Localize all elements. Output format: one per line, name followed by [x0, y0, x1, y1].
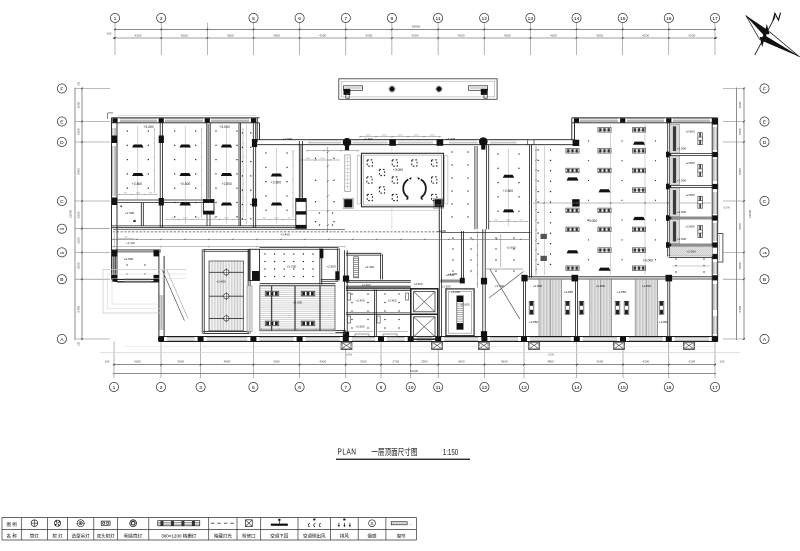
- svg-text:PLAN: PLAN: [338, 447, 357, 457]
- svg-text:烟感: 烟感: [368, 532, 377, 539]
- svg-text:暗藏灯光: 暗藏灯光: [214, 532, 232, 539]
- svg-text:4200: 4200: [689, 360, 696, 364]
- svg-text:4200: 4200: [642, 33, 649, 37]
- svg-text:100: 100: [77, 341, 80, 346]
- svg-text:4200: 4200: [412, 33, 419, 37]
- svg-text:...: ...: [409, 522, 412, 526]
- svg-text:3600: 3600: [177, 360, 184, 364]
- svg-text:9: 9: [391, 16, 394, 22]
- svg-text:300×1200 格栅灯: 300×1200 格栅灯: [161, 532, 196, 539]
- svg-text:+2.850: +2.850: [685, 225, 695, 229]
- svg-text:+2.850: +2.850: [685, 161, 695, 165]
- svg-text:11: 11: [436, 16, 441, 22]
- svg-text:4200: 4200: [181, 33, 188, 37]
- svg-text:4200: 4200: [134, 360, 141, 364]
- svg-text:0.5%: 0.5%: [346, 352, 353, 356]
- svg-text:5400: 5400: [738, 305, 742, 312]
- svg-text:54800: 54800: [412, 25, 421, 29]
- svg-text:+3.200: +3.200: [287, 265, 297, 269]
- svg-text:16: 16: [666, 16, 672, 22]
- svg-text:+3.400: +3.400: [363, 137, 373, 141]
- svg-text:+2.850: +2.850: [529, 320, 539, 324]
- svg-text:+2.400: +2.400: [356, 299, 365, 303]
- svg-text:12: 12: [481, 16, 487, 22]
- svg-text:14: 14: [574, 16, 580, 22]
- svg-text:2: 2: [160, 16, 163, 22]
- svg-text:4200: 4200: [227, 33, 234, 37]
- svg-text:23800: 23800: [748, 209, 752, 218]
- svg-text:0.5%: 0.5%: [723, 206, 730, 210]
- svg-text:1:150: 1:150: [443, 448, 458, 457]
- svg-text:名 称: 名 称: [7, 532, 18, 539]
- svg-text:+2.800: +2.800: [503, 189, 513, 193]
- svg-text:3600: 3600: [501, 360, 508, 364]
- svg-text:15: 15: [620, 385, 626, 391]
- svg-text:+2.900: +2.900: [686, 250, 696, 254]
- svg-text:2200: 2200: [76, 237, 80, 244]
- svg-text:7: 7: [344, 385, 347, 391]
- svg-text:+2.800: +2.800: [533, 284, 543, 288]
- svg-text:排风: 排风: [340, 532, 349, 539]
- svg-text:F: F: [763, 86, 766, 92]
- svg-text:1: 1: [114, 16, 117, 22]
- svg-text:+2.800: +2.800: [596, 284, 606, 288]
- svg-text:+3.200: +3.200: [451, 290, 460, 294]
- svg-text:3: 3: [199, 385, 202, 391]
- svg-text:明装筒灯: 明装筒灯: [124, 532, 142, 539]
- svg-text:检修口: 检修口: [242, 532, 256, 539]
- svg-text:1: 1: [113, 385, 116, 391]
- svg-text:16: 16: [666, 385, 672, 391]
- svg-text:8: 8: [380, 385, 383, 391]
- svg-text:+2.650: +2.650: [461, 303, 470, 307]
- svg-text:1500: 1500: [382, 134, 388, 136]
- svg-text:6: 6: [298, 16, 301, 22]
- svg-text:+2.400: +2.400: [365, 265, 375, 269]
- svg-text:54600: 54600: [410, 369, 419, 373]
- svg-text:+2.500: +2.500: [677, 237, 687, 241]
- svg-text:+2.800: +2.800: [124, 257, 134, 261]
- svg-text:+3.400: +3.400: [280, 232, 290, 236]
- svg-text:窗帘: 窗帘: [397, 532, 406, 539]
- svg-text:图 例: 图 例: [7, 521, 18, 528]
- svg-text:B: B: [60, 277, 63, 283]
- svg-text:4200: 4200: [273, 360, 280, 364]
- svg-text:2/B: 2/B: [60, 227, 65, 231]
- svg-text:+2.850: +2.850: [685, 193, 695, 197]
- svg-text:+2.800: +2.800: [271, 181, 281, 185]
- svg-text:17: 17: [712, 385, 718, 391]
- svg-text:+3.400: +3.400: [446, 137, 456, 141]
- svg-text:+2.500: +2.500: [677, 179, 687, 183]
- svg-text:5: 5: [252, 385, 255, 391]
- svg-text:4200: 4200: [550, 33, 557, 37]
- svg-text:+3.400: +3.400: [126, 241, 135, 245]
- svg-text:4700: 4700: [738, 223, 742, 230]
- svg-text:100: 100: [720, 360, 725, 364]
- svg-text:4800: 4800: [224, 360, 231, 364]
- svg-text:+2.600: +2.600: [326, 265, 336, 269]
- svg-text:+2.500: +2.500: [677, 147, 687, 151]
- svg-text:+2.850: +2.850: [685, 129, 695, 133]
- svg-text:100: 100: [107, 31, 112, 35]
- svg-text:5400: 5400: [738, 168, 742, 175]
- svg-text:4200: 4200: [458, 360, 465, 364]
- svg-text:2500: 2500: [421, 360, 428, 364]
- svg-text:0.5%: 0.5%: [548, 352, 555, 356]
- svg-text:1/B: 1/B: [762, 251, 767, 255]
- svg-text:+3.400: +3.400: [216, 279, 226, 283]
- svg-text:D: D: [60, 140, 64, 146]
- svg-text:10: 10: [408, 385, 414, 391]
- svg-text:+3.000: +3.000: [393, 168, 403, 172]
- svg-text:F: F: [60, 86, 63, 92]
- svg-text:14: 14: [574, 385, 580, 391]
- svg-text:空调下回: 空调下回: [270, 532, 288, 539]
- svg-text:6: 6: [298, 385, 301, 391]
- svg-text:+2.500: +2.500: [677, 210, 687, 214]
- svg-text:+3.300: +3.300: [414, 282, 423, 286]
- svg-text:4200: 4200: [504, 33, 511, 37]
- svg-text:1800: 1800: [76, 128, 80, 135]
- svg-text:2500: 2500: [76, 211, 80, 218]
- svg-text:+1.300: +1.300: [442, 284, 451, 288]
- svg-text:100: 100: [105, 360, 110, 364]
- svg-text:5400: 5400: [76, 305, 80, 312]
- svg-text:+2.800: +2.800: [222, 182, 232, 186]
- svg-text:1500: 1500: [398, 134, 404, 136]
- svg-text:4200: 4200: [688, 33, 695, 37]
- svg-text:一层顶面尺寸图: 一层顶面尺寸图: [371, 446, 417, 457]
- svg-text:15: 15: [620, 16, 626, 22]
- svg-text:+3.000: +3.000: [219, 125, 229, 129]
- svg-text:4200: 4200: [135, 33, 142, 37]
- svg-text:4200: 4200: [319, 360, 326, 364]
- svg-text:+2.800: +2.800: [642, 284, 652, 288]
- svg-text:4200: 4200: [273, 33, 280, 37]
- svg-text:23000: 23000: [69, 209, 73, 218]
- svg-text:+2.850: +2.850: [293, 301, 303, 305]
- svg-text:4200: 4200: [319, 33, 326, 37]
- svg-text:2500: 2500: [738, 262, 742, 269]
- svg-text:3000: 3000: [76, 101, 80, 108]
- svg-text:B: B: [763, 277, 766, 283]
- svg-text:射 灯: 射 灯: [52, 532, 63, 539]
- svg-text:+3.200: +3.200: [445, 273, 454, 277]
- svg-text:2700: 2700: [393, 360, 400, 364]
- svg-text:+2.500: +2.500: [283, 137, 293, 141]
- svg-text:1500: 1500: [366, 134, 372, 136]
- svg-text:D: D: [763, 140, 767, 146]
- svg-text:4800: 4800: [547, 360, 554, 364]
- svg-text:造型吊灯: 造型吊灯: [72, 532, 90, 539]
- svg-text:4200: 4200: [643, 360, 650, 364]
- svg-text:+1.500: +1.500: [125, 211, 135, 215]
- svg-text:筒灯: 筒灯: [30, 532, 39, 539]
- svg-text:1/B: 1/B: [60, 251, 65, 255]
- svg-text:S: S: [371, 521, 374, 526]
- svg-text:17: 17: [712, 16, 718, 22]
- svg-text:+2.800: +2.800: [132, 182, 142, 186]
- svg-text:13: 13: [521, 385, 527, 391]
- svg-text:2500: 2500: [76, 262, 80, 269]
- svg-text:双头射灯: 双头射灯: [97, 532, 115, 539]
- svg-text:13: 13: [528, 16, 534, 22]
- svg-text:1500: 1500: [414, 134, 420, 136]
- svg-text:C: C: [763, 199, 767, 205]
- svg-text:+2.600: +2.600: [356, 325, 365, 329]
- svg-text:12: 12: [482, 385, 488, 391]
- svg-text:4200: 4200: [596, 33, 603, 37]
- svg-text:2: 2: [160, 385, 163, 391]
- svg-text:4200: 4200: [597, 360, 604, 364]
- svg-text:+2.850: +2.850: [564, 290, 574, 294]
- svg-text:4200: 4200: [365, 33, 372, 37]
- svg-text:+3.000: +3.000: [643, 259, 653, 263]
- svg-text:100: 100: [77, 81, 80, 86]
- svg-text:11: 11: [436, 385, 441, 391]
- svg-text:+2.400: +2.400: [362, 283, 371, 287]
- svg-text:3200: 3200: [360, 360, 367, 364]
- svg-text:空调侧出风: 空调侧出风: [303, 532, 326, 539]
- svg-text:1800: 1800: [738, 128, 742, 135]
- svg-text:+2.400: +2.400: [388, 299, 397, 303]
- svg-text:+3.200: +3.200: [437, 229, 446, 233]
- svg-text:+2.850: +2.850: [617, 290, 627, 294]
- svg-text:3000: 3000: [738, 101, 742, 108]
- svg-text:5: 5: [252, 16, 255, 22]
- svg-text:+3.000: +3.000: [143, 125, 153, 129]
- svg-text:C: C: [60, 199, 64, 205]
- svg-text:7: 7: [344, 16, 347, 22]
- svg-text:+2.800: +2.800: [180, 182, 190, 186]
- svg-text:4200: 4200: [458, 33, 465, 37]
- svg-text:+2.850: +2.850: [659, 320, 669, 324]
- svg-text:5400: 5400: [76, 168, 80, 175]
- svg-text:1500: 1500: [430, 134, 436, 136]
